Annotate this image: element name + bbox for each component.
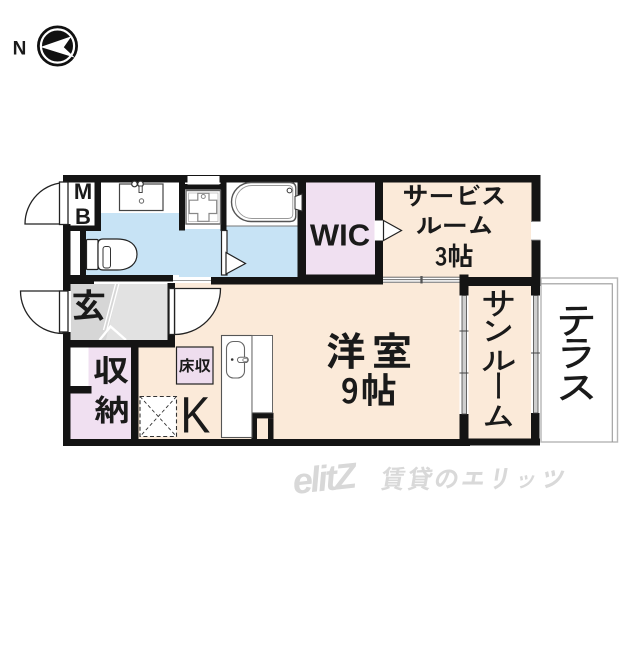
svg-text:elitZ: elitZ: [291, 454, 361, 502]
svg-text:N: N: [13, 39, 27, 60]
svg-text:WIC: WIC: [310, 218, 370, 253]
svg-text:M: M: [74, 179, 92, 204]
svg-text:K: K: [180, 388, 210, 444]
svg-text:B: B: [75, 204, 91, 229]
